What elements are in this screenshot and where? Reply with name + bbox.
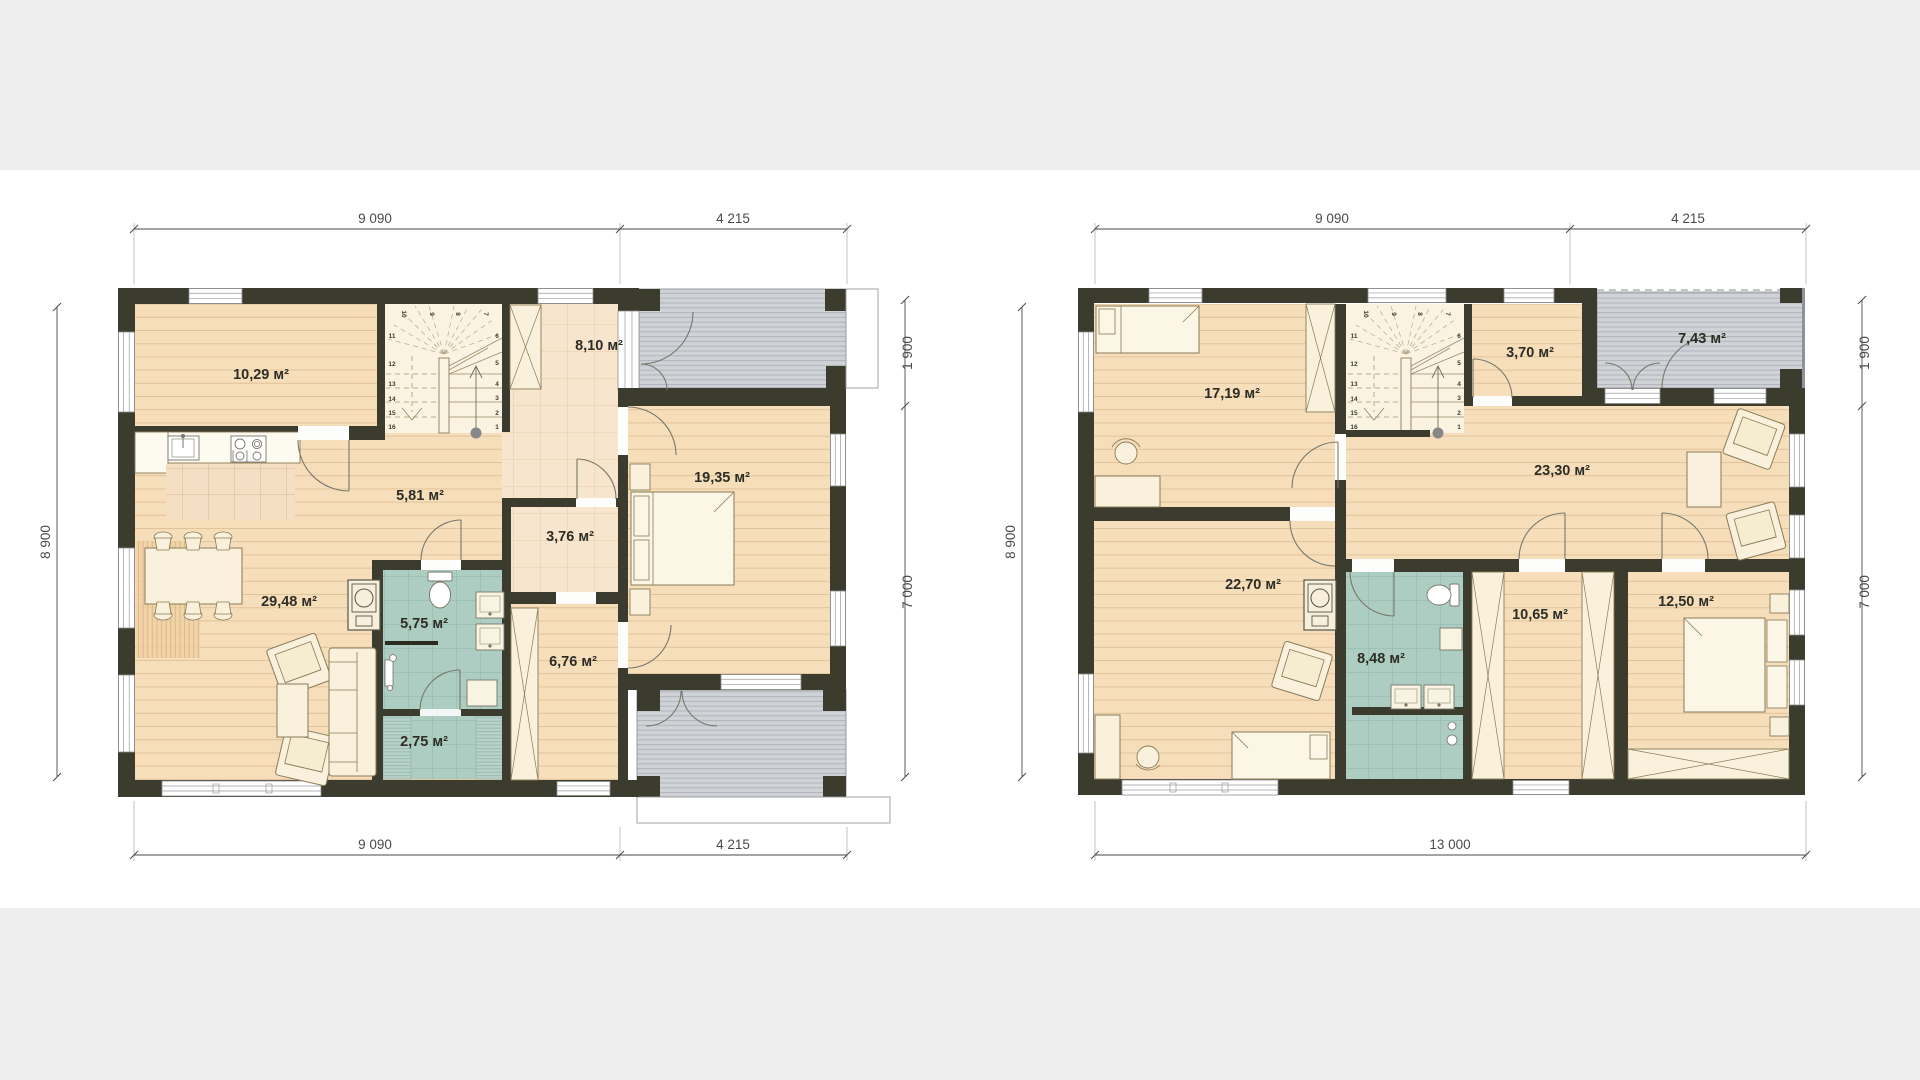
svg-text:16: 16 xyxy=(1350,424,1358,431)
svg-text:6,76 м²: 6,76 м² xyxy=(549,654,597,670)
svg-text:3: 3 xyxy=(495,395,499,402)
svg-text:16: 16 xyxy=(388,424,396,431)
svg-text:8: 8 xyxy=(454,312,461,316)
svg-text:9: 9 xyxy=(428,312,435,316)
svg-text:6: 6 xyxy=(495,333,499,340)
svg-text:8,48 м²: 8,48 м² xyxy=(1357,651,1405,667)
svg-text:1: 1 xyxy=(1457,424,1461,431)
svg-text:13: 13 xyxy=(388,381,396,388)
svg-text:4 215: 4 215 xyxy=(716,837,750,852)
svg-text:9 090: 9 090 xyxy=(358,837,392,852)
svg-text:3,70 м²: 3,70 м² xyxy=(1506,345,1554,361)
svg-text:13: 13 xyxy=(1350,381,1358,388)
svg-text:8 900: 8 900 xyxy=(1003,525,1018,559)
svg-text:2: 2 xyxy=(1457,410,1461,417)
svg-text:11: 11 xyxy=(389,333,396,340)
svg-text:7,43 м²: 7,43 м² xyxy=(1678,331,1726,347)
svg-text:7 000: 7 000 xyxy=(900,575,915,609)
svg-text:13 000: 13 000 xyxy=(1429,837,1470,852)
svg-text:14: 14 xyxy=(1350,396,1358,403)
svg-text:10,29 м²: 10,29 м² xyxy=(233,367,289,383)
svg-text:19,35 м²: 19,35 м² xyxy=(694,470,750,486)
svg-text:5,75 м²: 5,75 м² xyxy=(400,616,448,632)
svg-text:17,19 м²: 17,19 м² xyxy=(1204,386,1260,402)
svg-text:15: 15 xyxy=(1350,410,1358,417)
svg-text:2: 2 xyxy=(495,410,499,417)
svg-text:3,76 м²: 3,76 м² xyxy=(546,529,594,545)
svg-text:10,65 м²: 10,65 м² xyxy=(1512,607,1568,623)
svg-text:5: 5 xyxy=(1457,360,1461,367)
svg-text:1 900: 1 900 xyxy=(900,336,915,370)
svg-text:3: 3 xyxy=(1457,395,1461,402)
svg-text:11: 11 xyxy=(1351,333,1358,340)
svg-text:29,48 м²: 29,48 м² xyxy=(261,594,317,610)
svg-text:1 900: 1 900 xyxy=(1857,336,1872,370)
svg-text:8 900: 8 900 xyxy=(38,525,53,559)
svg-text:5,81 м²: 5,81 м² xyxy=(396,488,444,504)
svg-text:5: 5 xyxy=(495,360,499,367)
svg-text:9 090: 9 090 xyxy=(1315,211,1349,226)
svg-text:15: 15 xyxy=(388,410,396,417)
svg-text:6: 6 xyxy=(1457,333,1461,340)
svg-text:7: 7 xyxy=(482,312,489,316)
svg-text:23,30 м²: 23,30 м² xyxy=(1534,463,1590,479)
svg-text:8: 8 xyxy=(1416,312,1423,316)
svg-text:12,50 м²: 12,50 м² xyxy=(1658,594,1714,610)
svg-text:8,10 м²: 8,10 м² xyxy=(575,338,623,354)
svg-text:4 215: 4 215 xyxy=(716,211,750,226)
svg-text:4: 4 xyxy=(495,381,499,388)
svg-text:1: 1 xyxy=(495,424,499,431)
svg-text:7 000: 7 000 xyxy=(1857,575,1872,609)
svg-text:4 215: 4 215 xyxy=(1671,211,1705,226)
svg-text:12: 12 xyxy=(388,361,396,368)
svg-text:10: 10 xyxy=(400,310,407,318)
svg-text:7: 7 xyxy=(1444,312,1451,316)
svg-text:2,75 м²: 2,75 м² xyxy=(400,734,448,750)
svg-text:4: 4 xyxy=(1457,381,1461,388)
svg-text:9 090: 9 090 xyxy=(358,211,392,226)
svg-text:10: 10 xyxy=(1362,310,1369,318)
svg-text:9: 9 xyxy=(1390,312,1397,316)
svg-text:12: 12 xyxy=(1350,361,1358,368)
svg-text:14: 14 xyxy=(388,396,396,403)
svg-text:22,70 м²: 22,70 м² xyxy=(1225,577,1281,593)
